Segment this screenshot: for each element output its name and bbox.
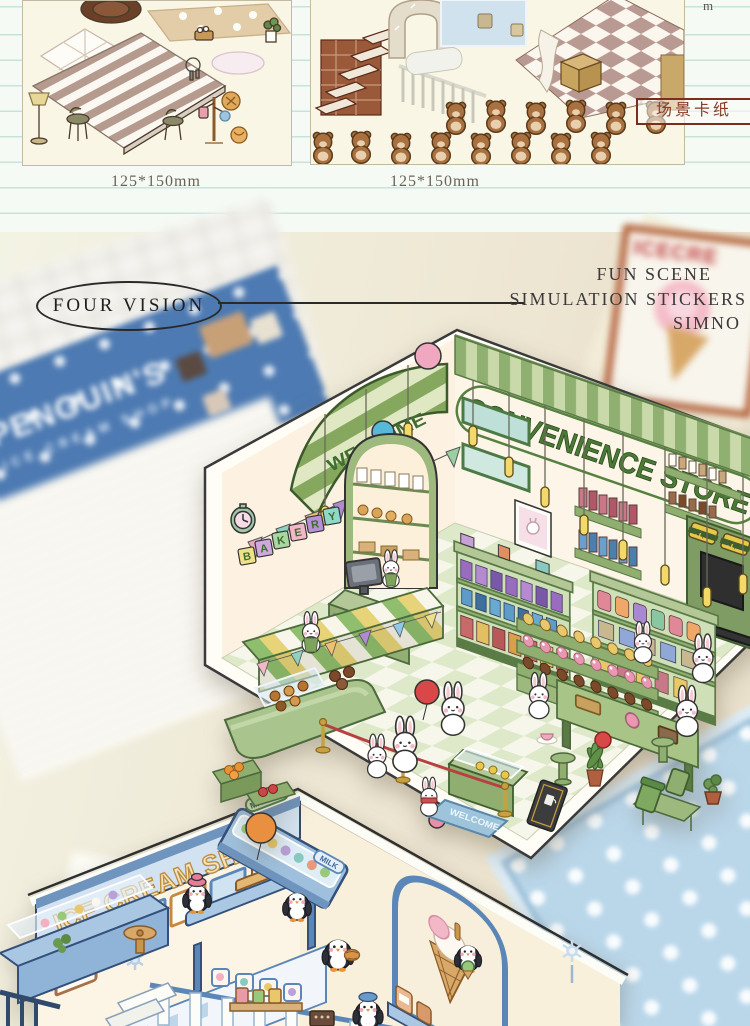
brand-oval: FOUR VISION xyxy=(36,281,222,331)
railing-sticker xyxy=(399,66,486,123)
convenience-store-scene: CONVENIENCE STORE xyxy=(195,320,750,865)
furniture-sheet-art xyxy=(23,1,291,165)
scene-card-label: 场景卡纸 xyxy=(636,98,750,125)
corner-mark: m xyxy=(703,0,713,14)
pink-balloon xyxy=(415,343,441,369)
top-ruled-section: 125*150mm 125*150mm 场景卡纸 m xyxy=(0,0,750,232)
connector-line xyxy=(218,302,524,304)
fruit-crates xyxy=(213,760,295,806)
tagline-line3: SIMNO xyxy=(673,313,741,334)
wall-frame-sticker xyxy=(511,24,523,36)
wall-frame-sticker xyxy=(478,14,492,28)
size-caption-left: 125*150mm xyxy=(61,173,251,191)
floor-lamp-sticker xyxy=(29,93,49,144)
round-rug-sticker xyxy=(212,52,264,74)
bottom-photo-section: PENGUIN'S ICE CREAM SHOP ICECRE xyxy=(0,232,750,1026)
tagline-line1: FUN SCENE xyxy=(596,264,712,285)
product-photo-furniture-sheet xyxy=(22,0,292,166)
scene-sheet-art xyxy=(311,0,684,164)
product-photo-scene-sheet xyxy=(310,0,685,165)
size-caption-right: 125*150mm xyxy=(365,173,505,191)
box-sticker xyxy=(561,54,601,92)
potted-plant xyxy=(704,775,721,804)
tagline-line2: SIMULATION STICKERS xyxy=(509,289,747,310)
product-page-image: 125*150mm 125*150mm 场景卡纸 m PENGUIN'S ICE… xyxy=(0,0,750,1026)
bath-mat-sticker xyxy=(405,46,464,76)
cash-register xyxy=(310,1011,334,1026)
